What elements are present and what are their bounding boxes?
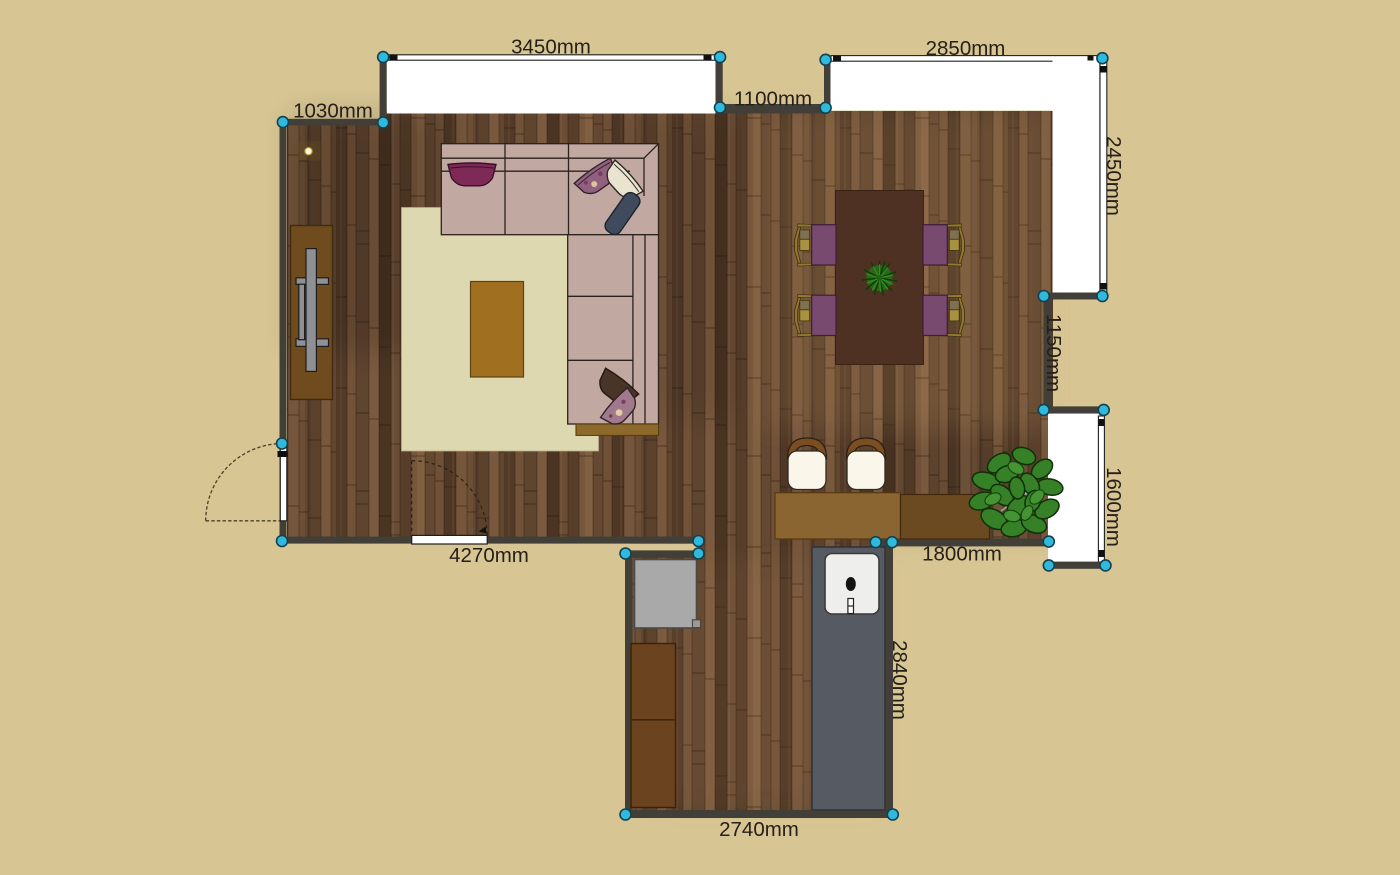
svg-text:2740mm: 2740mm <box>719 818 799 841</box>
svg-text:1150mm: 1150mm <box>1042 314 1065 392</box>
svg-text:2850mm: 2850mm <box>926 37 1006 60</box>
svg-text:4270mm: 4270mm <box>449 544 529 567</box>
svg-text:2450mm: 2450mm <box>1102 136 1125 216</box>
svg-text:1100mm: 1100mm <box>734 88 812 111</box>
svg-text:3450mm: 3450mm <box>511 36 591 59</box>
svg-text:1800mm: 1800mm <box>922 543 1002 566</box>
svg-text:2840mm: 2840mm <box>888 640 911 720</box>
svg-text:1600mm: 1600mm <box>1102 467 1125 547</box>
svg-text:1030mm: 1030mm <box>293 100 373 123</box>
